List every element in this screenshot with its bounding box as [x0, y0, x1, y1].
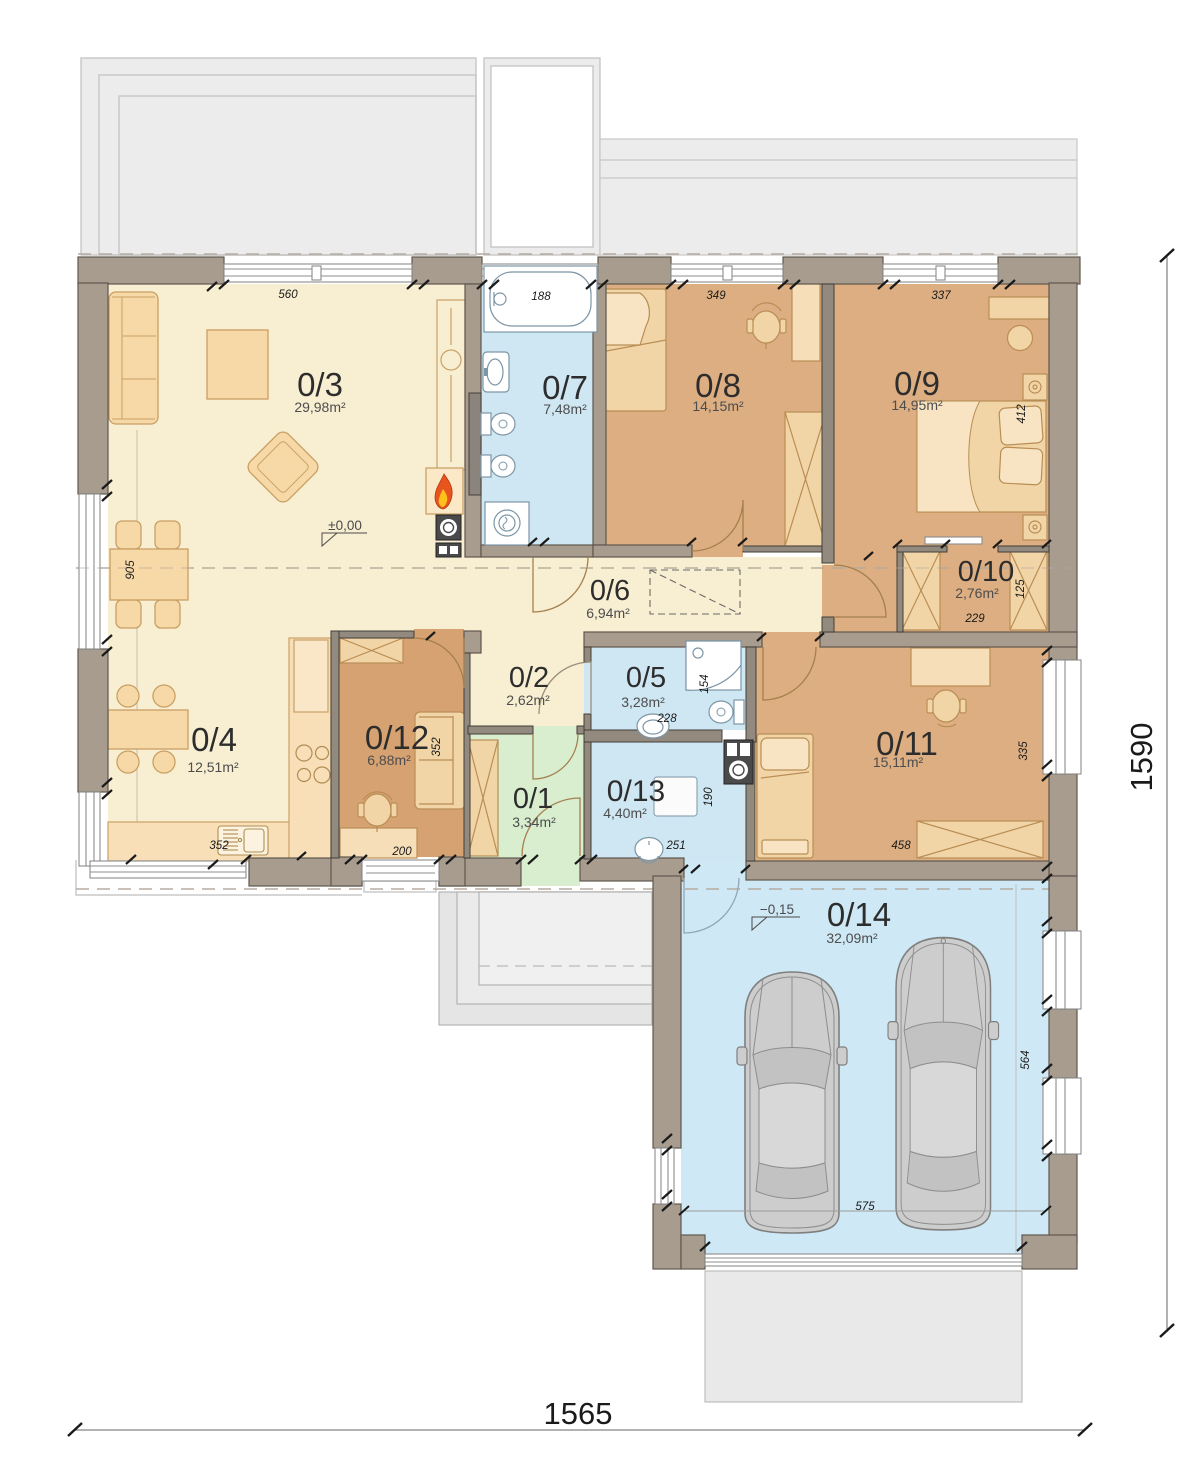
svg-text:0/10: 0/10	[958, 556, 1014, 588]
svg-text:2,76m²: 2,76m²	[955, 585, 999, 601]
svg-text:12,51m²: 12,51m²	[187, 759, 239, 775]
svg-text:560: 560	[278, 289, 298, 301]
svg-text:3,34m²: 3,34m²	[512, 814, 556, 830]
svg-text:251: 251	[665, 840, 685, 852]
svg-text:6,88m²: 6,88m²	[367, 752, 411, 768]
svg-text:15,11m²: 15,11m²	[873, 754, 924, 770]
svg-text:228: 228	[656, 713, 677, 725]
svg-text:458: 458	[891, 840, 911, 852]
svg-text:905: 905	[125, 560, 137, 580]
svg-text:0/5: 0/5	[626, 662, 666, 694]
svg-text:0/13: 0/13	[607, 775, 665, 808]
svg-text:349: 349	[706, 290, 726, 302]
svg-text:14,95m²: 14,95m²	[891, 397, 943, 413]
svg-text:335: 335	[1018, 741, 1030, 761]
svg-text:0/3: 0/3	[297, 366, 343, 403]
svg-text:0/14: 0/14	[827, 896, 891, 933]
svg-text:1590: 1590	[1124, 723, 1159, 792]
svg-text:190: 190	[703, 787, 715, 807]
svg-text:188: 188	[531, 291, 551, 303]
svg-text:0/2: 0/2	[509, 662, 549, 694]
svg-text:2,62m²: 2,62m²	[506, 692, 550, 708]
svg-text:32,09m²: 32,09m²	[826, 930, 878, 946]
svg-text:352: 352	[431, 737, 443, 757]
svg-text:229: 229	[964, 613, 985, 625]
svg-text:3,28m²: 3,28m²	[621, 694, 665, 710]
svg-text:0/12: 0/12	[365, 719, 429, 756]
svg-text:±0,00: ±0,00	[328, 518, 362, 533]
svg-text:154: 154	[699, 674, 711, 693]
svg-text:6,94m²: 6,94m²	[586, 605, 630, 621]
svg-text:412: 412	[1016, 404, 1028, 424]
svg-text:14,15m²: 14,15m²	[692, 398, 744, 414]
svg-text:4,40m²: 4,40m²	[603, 805, 647, 821]
svg-text:0/4: 0/4	[191, 721, 237, 758]
svg-text:125: 125	[1015, 579, 1027, 599]
svg-text:200: 200	[391, 846, 412, 858]
svg-text:564: 564	[1020, 1050, 1032, 1069]
svg-text:0/1: 0/1	[513, 783, 553, 815]
svg-text:337: 337	[931, 290, 951, 302]
svg-text:0/6: 0/6	[590, 575, 630, 607]
svg-text:−0,15: −0,15	[760, 902, 794, 917]
svg-text:7,48m²: 7,48m²	[543, 401, 587, 417]
svg-text:29,98m²: 29,98m²	[294, 399, 346, 415]
svg-text:352: 352	[209, 840, 229, 852]
svg-text:1565: 1565	[544, 1396, 613, 1431]
